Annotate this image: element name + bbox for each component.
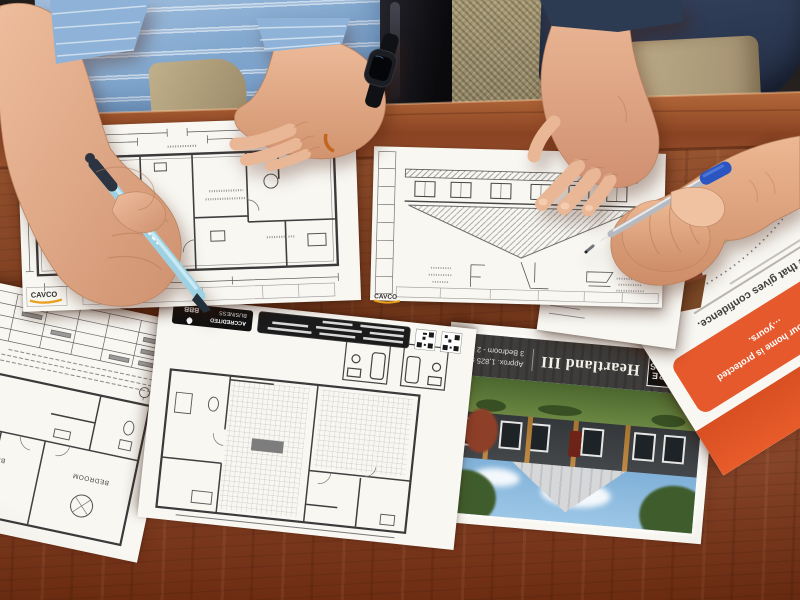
room-label: BEDROOM: [72, 472, 110, 487]
main-floorplan: [156, 369, 420, 538]
window: [662, 435, 686, 465]
floorplan: BEDROOM BEDROOM: [0, 366, 150, 545]
porch-post: [622, 423, 631, 471]
qr-code: [414, 329, 436, 351]
right-person-right-arm: [553, 122, 800, 302]
front-door: [568, 430, 582, 457]
house-photo: [445, 374, 704, 533]
left-person-left-arm: [0, 0, 250, 340]
cavco-logo-text: CAVCO: [374, 293, 397, 301]
left-person-right-arm: [228, 18, 413, 173]
notes-lines: [0, 341, 153, 392]
window: [632, 432, 656, 462]
shrub: [538, 404, 583, 418]
shrub: [651, 414, 686, 429]
model-name: Heartland III: [540, 352, 641, 379]
qr-code: [440, 332, 462, 354]
window: [580, 428, 604, 458]
room-label: BEDROOM: [0, 450, 6, 465]
window: [498, 420, 522, 450]
photo-canvas: FUTURE HOMES Heartland III Approx. 1,825…: [0, 0, 800, 600]
